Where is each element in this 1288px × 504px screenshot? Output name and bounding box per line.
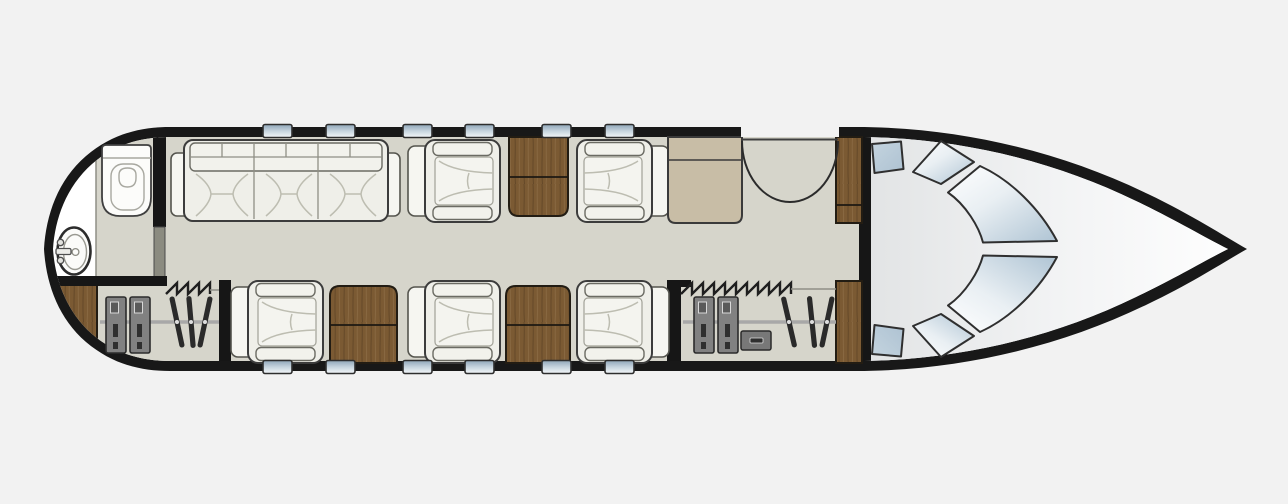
cabin-window — [403, 125, 432, 138]
locker — [130, 297, 150, 353]
divan — [171, 140, 400, 221]
cabin-window — [542, 361, 571, 374]
washbasin — [56, 228, 91, 275]
faucet-knob — [57, 239, 63, 245]
seat-armrest — [585, 207, 644, 220]
seat-armrest — [585, 284, 644, 297]
lavatory-aft-wall — [55, 276, 167, 286]
cabin-window — [465, 361, 494, 374]
seat-armrest — [433, 143, 492, 156]
cabin-window — [465, 125, 494, 138]
lavatory-wall-lower — [154, 227, 165, 277]
seat-armrest — [256, 284, 315, 297]
floorplan-canvas: Business jet cabin floor plan, top view,… — [0, 0, 1288, 504]
seat-armrest — [256, 348, 315, 361]
seat-armrest — [585, 143, 644, 156]
club-seat-5 — [577, 281, 669, 363]
cabin-window — [263, 361, 292, 374]
seat-armrest — [433, 348, 492, 361]
galley-cabinet — [668, 137, 742, 223]
fold-out-table — [509, 137, 568, 216]
locker — [106, 297, 126, 353]
storage-drawer — [741, 331, 771, 350]
aft-wardrobe-wall — [219, 280, 231, 364]
faucet-spout — [56, 249, 71, 255]
seat-armrest — [433, 207, 492, 220]
seat-armrest — [433, 284, 492, 297]
club-seat-4 — [408, 281, 500, 363]
club-seat-3 — [231, 281, 323, 363]
fold-out-table — [506, 286, 570, 363]
club-seat-2 — [577, 140, 669, 222]
cabin-window — [542, 125, 571, 138]
cabin-window — [326, 361, 355, 374]
forward-cabinet-top — [836, 137, 862, 223]
cabin-window — [605, 125, 634, 138]
locker — [718, 297, 738, 353]
seat-armrest — [585, 348, 644, 361]
cabin-window — [605, 361, 634, 374]
cockpit-side-window — [872, 142, 904, 174]
toilet — [102, 145, 151, 216]
cabin-window — [263, 125, 292, 138]
locker — [694, 297, 714, 353]
lavatory-wall — [153, 133, 166, 227]
floorplan-stage: Business jet cabin floor plan, top view,… — [0, 0, 1288, 504]
faucet-knob — [57, 257, 63, 263]
club-seat-1 — [408, 140, 500, 222]
fold-out-table — [330, 286, 397, 363]
forward-cabinet-bottom — [836, 281, 862, 363]
cabin-window — [326, 125, 355, 138]
cabin-window — [403, 361, 432, 374]
